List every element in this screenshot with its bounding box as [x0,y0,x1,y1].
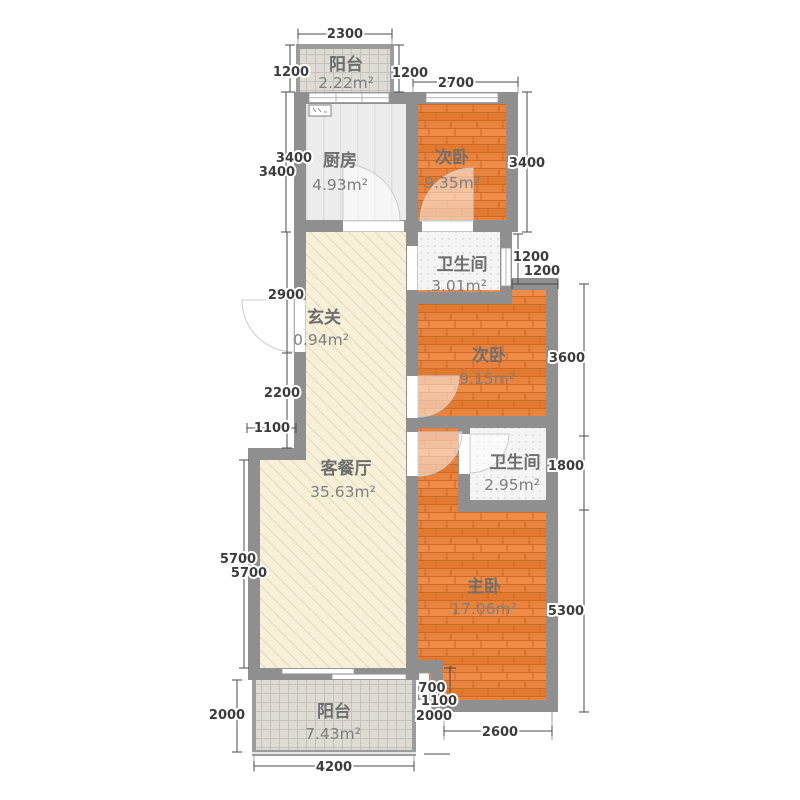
room-area: 3.01m² [431,277,487,295]
dim-label: 5300 [548,604,584,619]
room-area: 0.94m² [293,331,349,349]
dim-label: 3400 [259,165,295,180]
room-name: 卫生间 [490,452,541,473]
dim-label: 1800 [548,459,584,474]
dim-label: 2600 [482,725,518,740]
room-area: 9.35m² [424,174,480,192]
dim-label: 3400 [509,156,545,171]
dim-label: 2000 [416,709,452,724]
dim-label: 1100 [254,421,290,436]
room-name: 阳台 [317,701,351,722]
wall-segment [296,44,394,49]
dim-label: 2000 [209,708,245,723]
dim-label: 5700 [220,552,256,567]
dim-label: 4200 [316,760,352,775]
living-balcony-door-pane [282,669,354,674]
floorplan-svg: 阳台 2.22m² 厨房 4.93m² 次卧 9.35m² 卫生间 3.01m²… [0,0,800,800]
dim-label: 3600 [549,351,585,366]
dim-label: 1200 [392,66,428,81]
floorplan-canvas: 阳台 2.22m² 厨房 4.93m² 次卧 9.35m² 卫生间 3.01m²… [0,0,800,800]
room-area: 2.22m² [318,74,374,92]
room-area: 17.06m² [451,600,517,618]
dim-label: 2900 [268,288,304,303]
dim-label: 1200 [273,65,309,80]
room-area: 9.15m² [459,370,515,388]
master-door-opening [407,432,418,476]
room-name: 卫生间 [437,254,488,275]
room-name: 玄关 [307,307,341,328]
room-name: 主卧 [467,576,501,597]
room-area: 35.63m² [310,483,376,501]
room-name: 阳台 [329,54,363,75]
living-balcony-door-pane [332,674,406,679]
dim-label: 2700 [438,76,474,91]
dim-label: 5700 [231,566,267,581]
kitchen-fixture-icon [309,105,331,116]
dim-label: 3400 [276,151,312,166]
dim-label: 1200 [524,264,560,279]
wall-segment [294,220,518,232]
dim-label: 2300 [327,27,363,42]
room-area: 7.43m² [305,725,361,743]
bedroom-mid-door-opening [407,376,418,418]
dim-label: 1200 [513,250,549,265]
room-name: 次卧 [472,345,506,366]
room-name: 次卧 [435,147,469,168]
kitchen-door-opening [343,221,404,232]
room-area: 2.95m² [484,476,540,494]
bedroom-top-door-opening [422,221,473,232]
room-area: 4.93m² [312,176,368,194]
wall-segment [252,680,256,754]
entry-door-arc [242,300,294,352]
dim-label: 2200 [264,386,300,401]
wall-segment [546,278,558,712]
wall-segment [458,500,558,512]
wall-segment [406,416,558,428]
bathroom-top-door-opening [407,246,418,290]
room-name: 厨房 [323,150,357,171]
room-name: 客餐厅 [320,458,372,479]
dim-label: 1100 [421,694,457,709]
